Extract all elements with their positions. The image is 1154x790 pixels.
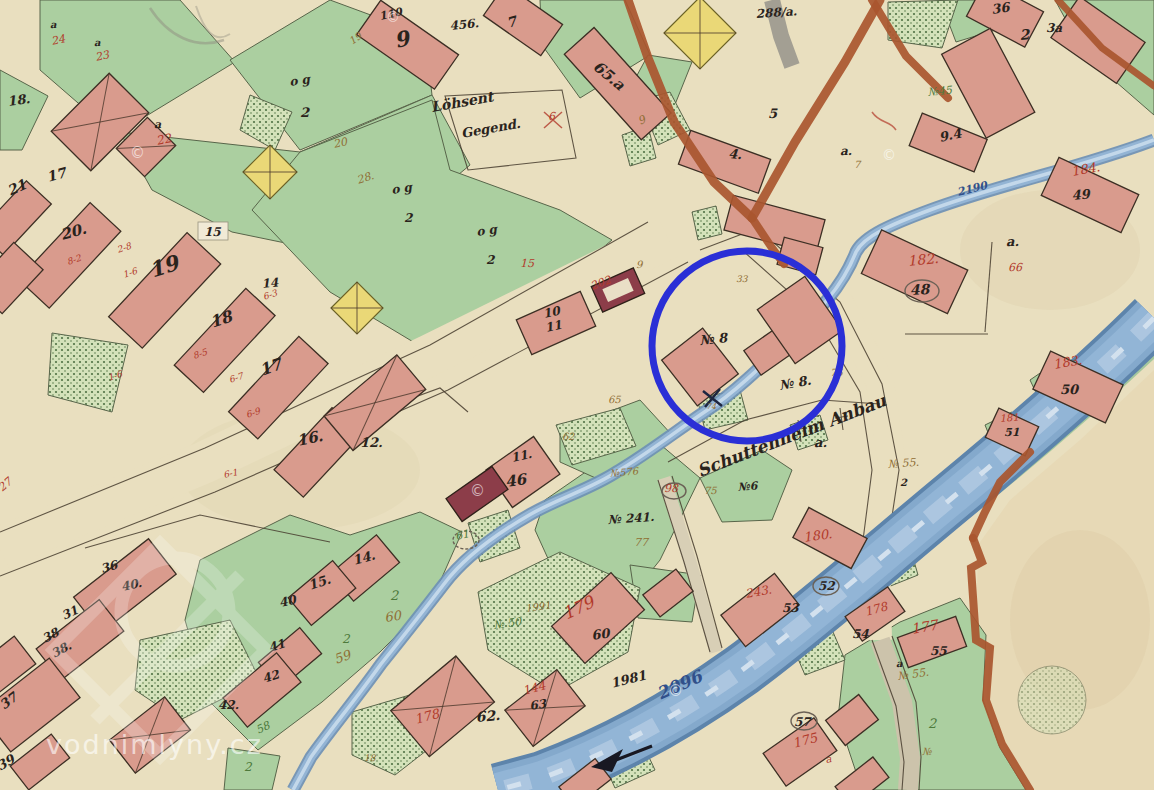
map-label: №45 — [927, 83, 954, 99]
map-label: a — [50, 19, 57, 30]
map-screenshot: 18.211720.19181716.12.15141109456.765.a4… — [0, 0, 1154, 790]
map-label: 54 — [852, 627, 869, 641]
map-label: №6 — [737, 479, 759, 494]
map-label: 49 — [1071, 186, 1092, 203]
map-label: © — [130, 144, 145, 162]
map-label: 2 — [900, 477, 908, 488]
map-label: 98 — [664, 482, 679, 495]
map-label: a — [896, 658, 903, 669]
map-label: 52 — [818, 579, 836, 593]
map-label: № 55. — [887, 456, 919, 471]
map-label: 18. — [6, 91, 30, 109]
map-label: a. — [814, 435, 827, 450]
map-label: a — [154, 118, 162, 131]
map-label: 3a — [1046, 21, 1062, 35]
map-label: 55 — [930, 644, 947, 658]
map-label: 33 — [736, 274, 749, 284]
map-label: 181 — [999, 411, 1019, 424]
map-label: a — [94, 37, 101, 48]
map-label: 53 — [782, 601, 800, 615]
map-label: 15 — [520, 257, 535, 270]
map-label: 74 — [706, 402, 717, 411]
map-label: © — [386, 9, 400, 25]
map-label: 5 — [768, 106, 778, 121]
map-label: 50 — [1060, 382, 1080, 397]
map-label: 2 — [928, 716, 937, 731]
map-label: № 8 — [699, 330, 730, 348]
map-label: 48 — [909, 281, 931, 298]
map-label: 51 — [1004, 426, 1020, 439]
map-label: 2 — [300, 105, 310, 120]
map-label: © — [882, 147, 896, 163]
map-label: 66 — [1008, 261, 1023, 274]
map-label: 62 — [562, 431, 575, 442]
map-label: 18 — [364, 753, 377, 763]
map-label: 12. — [360, 435, 383, 450]
map-label: © — [668, 682, 683, 700]
map-label: 62. — [475, 707, 501, 725]
cadastral-map-svg: 18.211720.19181716.12.15141109456.765.a4… — [0, 0, 1154, 790]
map-label: a. — [1006, 234, 1019, 249]
map-label: 46 — [504, 470, 529, 491]
map-label: 182. — [907, 250, 940, 269]
map-label: 288/a. — [755, 4, 797, 21]
map-label: 15 — [204, 225, 221, 239]
map-label: № — [922, 746, 932, 757]
map-label: 65 — [608, 394, 621, 405]
map-label: 75 — [704, 485, 717, 496]
map-label: 77 — [634, 536, 650, 549]
map-label: 2 — [390, 588, 399, 603]
map-label: 57 — [794, 715, 812, 729]
map-label: 4. — [728, 146, 743, 162]
watermark-site-text: vodnimlyny.cz — [46, 729, 263, 760]
map-label: © — [470, 482, 485, 500]
map-label: a. — [840, 144, 852, 158]
map-label: 6 — [548, 110, 556, 123]
